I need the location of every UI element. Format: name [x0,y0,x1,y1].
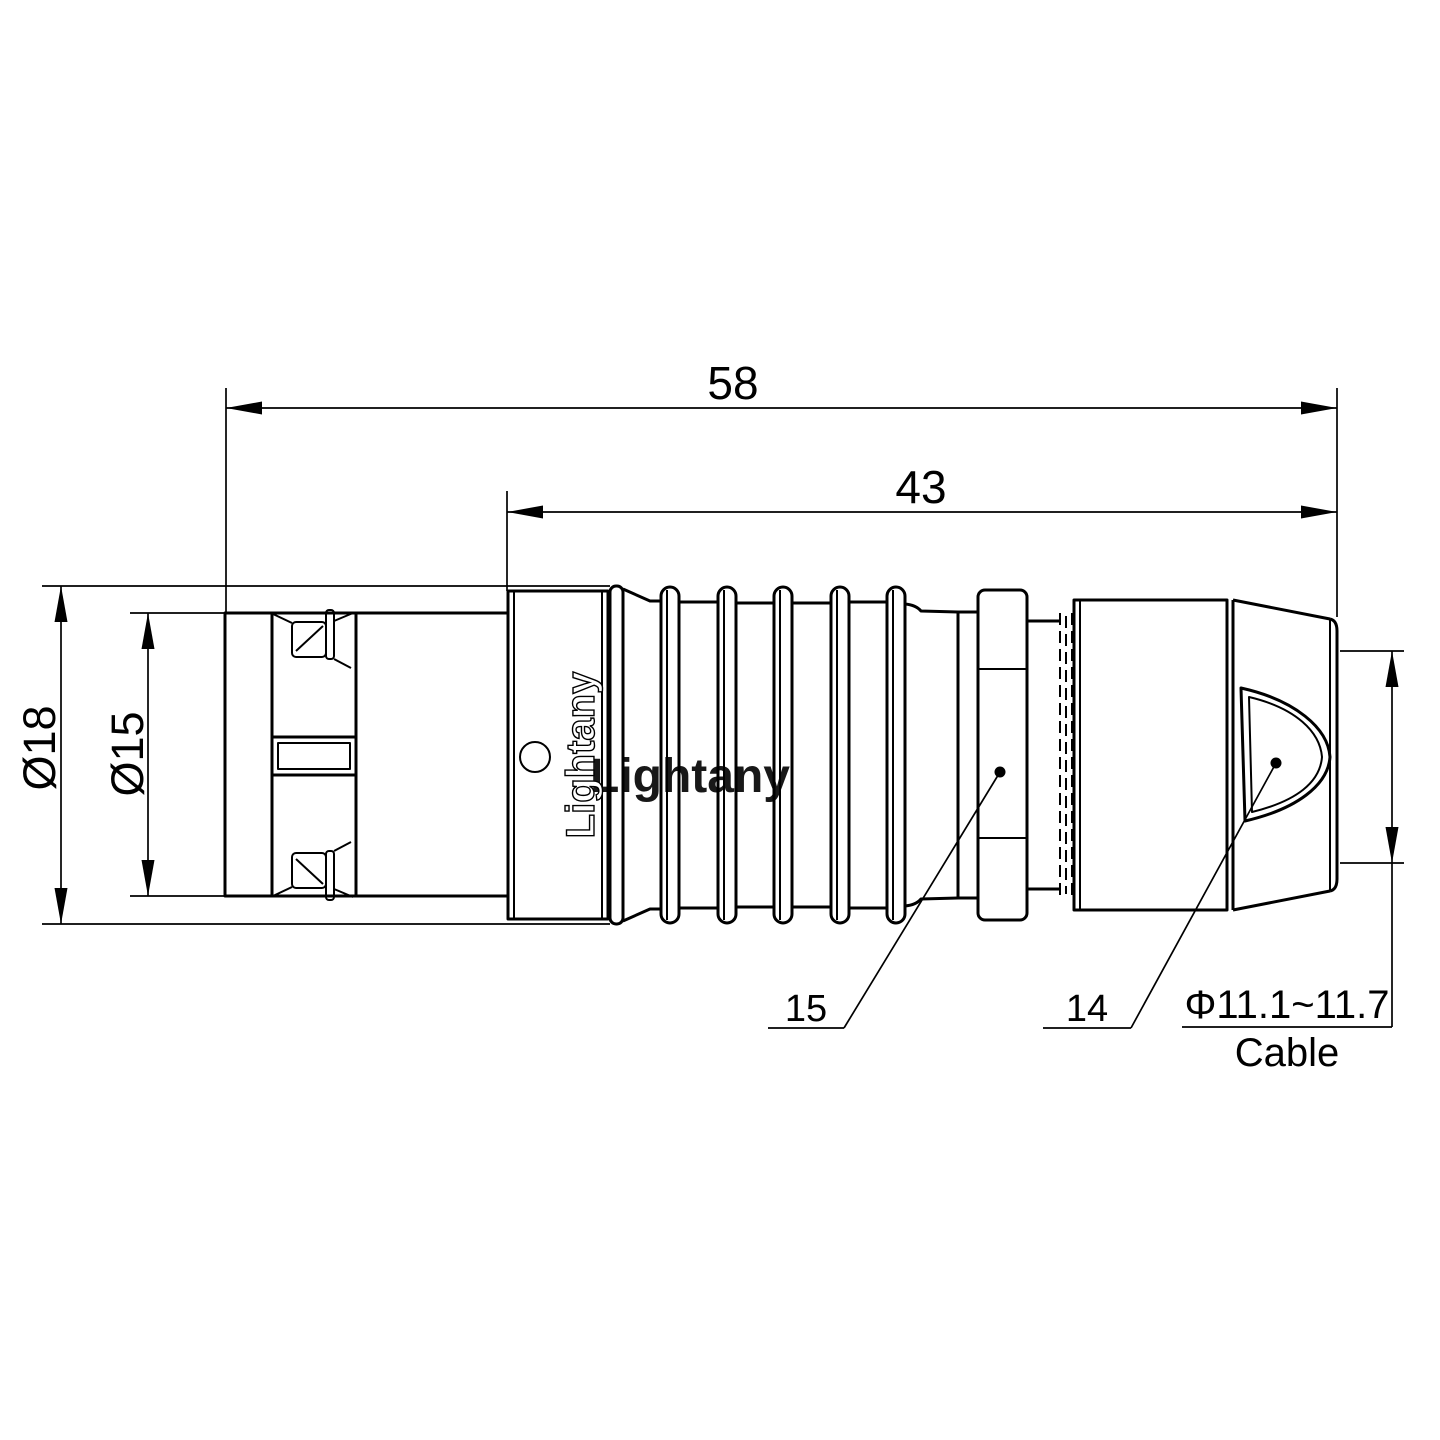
dia15-value: Ø15 [102,711,153,796]
dim58-value: 58 [707,357,758,409]
logo-text: Lightany [559,671,603,838]
ref14-leader-dot [1271,758,1282,769]
cable-label: Cable [1235,1031,1340,1075]
ref15-leader-dot [995,767,1006,778]
cable-diameter-value: Φ11.1~11.7 [1184,983,1389,1027]
ref14-value: 14 [1066,988,1108,1030]
dim43-value: 43 [895,461,946,513]
watermark-text: Lightany [590,750,790,803]
dia18-value: Ø18 [14,705,65,790]
paper-background [0,0,1440,1440]
drawing-canvas: Lightany [0,0,1440,1440]
ref15-value: 15 [785,988,827,1030]
